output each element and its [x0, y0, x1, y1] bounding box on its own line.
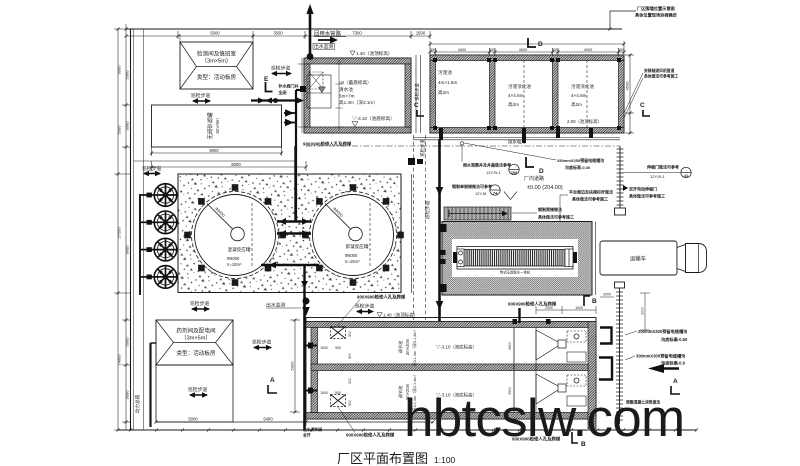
svg-text:钢制爬梯做法: 钢制爬梯做法 — [538, 206, 562, 212]
svg-text:900: 900 — [335, 346, 341, 350]
svg-text:900X900检修人孔及爬梯: 900X900检修人孔及爬梯 — [346, 432, 395, 439]
svg-text:4×4.6m: 4×4.6m — [508, 93, 524, 98]
svg-text:200mmX200预留电缆槽沟: 200mmX200预留电缆槽沟 — [638, 328, 687, 335]
svg-text:2900: 2900 — [508, 342, 512, 350]
svg-text:900: 900 — [335, 391, 341, 395]
svg-text:厂区围墙位置示意图: 厂区围墙位置示意图 — [637, 5, 675, 12]
svg-text:（3m×5m）: （3m×5m） — [202, 58, 232, 65]
svg-text:运输车: 运输车 — [630, 255, 647, 263]
svg-text:B: B — [592, 298, 597, 305]
svg-text:5000: 5000 — [290, 361, 295, 371]
svg-text:4000: 4000 — [519, 48, 527, 52]
svg-text:巡检步道: 巡检步道 — [414, 83, 421, 101]
svg-text:具体做法可参考施工: 具体做法可参考施工 — [643, 74, 678, 79]
svg-text:高1.4m（深3.1m）: 高1.4m（深3.1m） — [339, 99, 378, 106]
svg-text:钢制单侧梯做法可参考: 钢制单侧梯做法可参考 — [452, 183, 492, 189]
svg-text:9000: 9000 — [209, 148, 219, 153]
svg-text:8000: 8000 — [231, 162, 241, 167]
svg-text:1500: 1500 — [416, 31, 426, 36]
svg-text:12YJ9-1: 12YJ9-1 — [650, 174, 666, 179]
svg-text:3m×9m: 3m×9m — [215, 118, 220, 134]
svg-text:类型：活动板房: 类型：活动板房 — [197, 73, 237, 81]
svg-text:Φ6000: Φ6000 — [227, 256, 240, 261]
svg-text:5000: 5000 — [117, 125, 122, 135]
svg-text:2000: 2000 — [603, 293, 611, 297]
svg-text:沟底标高-0.50: 沟底标高-0.50 — [661, 336, 688, 343]
svg-text:A: A — [270, 377, 275, 384]
svg-text:9000: 9000 — [125, 245, 130, 255]
svg-text:调节池: 调节池 — [397, 340, 404, 353]
svg-text:9000: 9000 — [117, 65, 122, 75]
svg-text:双开电动伸缩门: 双开电动伸缩门 — [629, 186, 657, 192]
svg-text:污泥浓化池: 污泥浓化池 — [508, 83, 531, 90]
svg-text:100: 100 — [511, 171, 517, 175]
svg-text:高2m: 高2m — [438, 89, 449, 96]
svg-text:E: E — [264, 76, 269, 83]
svg-text:≈0（蓄底标高）: ≈0（蓄底标高） — [339, 79, 372, 86]
svg-text:类型：活动板房: 类型：活动板房 — [176, 349, 216, 357]
svg-text:41: 41 — [684, 174, 688, 178]
svg-text:出水调节阀: 出水调节阀 — [303, 427, 322, 432]
svg-text:12YJ8: 12YJ8 — [475, 191, 487, 196]
svg-text:4m×1.5m: 4m×1.5m — [438, 80, 457, 85]
svg-text:12YJ9-1: 12YJ9-1 — [486, 170, 502, 175]
svg-text:5m×7m: 5m×7m — [339, 94, 355, 99]
svg-text:▽-3.10（池底标高）: ▽-3.10（池底标高） — [436, 344, 477, 351]
svg-text:具体做法可参考施工: 具体做法可参考施工 — [538, 214, 574, 220]
svg-text:C: C — [414, 102, 419, 109]
svg-text:巡检步道: 巡检步道 — [355, 303, 374, 310]
svg-text:7300: 7300 — [352, 31, 362, 36]
svg-text:▽-3.10（池底标高）: ▽-3.10（池底标高） — [352, 115, 395, 122]
svg-text:3m×20m: 3m×20m — [405, 338, 410, 355]
svg-text:Φ6000: Φ6000 — [345, 253, 358, 258]
svg-text:动力总箱: 动力总箱 — [134, 394, 141, 413]
svg-text:巡检步道: 巡检步道 — [252, 339, 271, 346]
svg-text:300mmX300预留电缆槽沟: 300mmX300预留电缆槽沟 — [636, 353, 685, 360]
svg-text:V=10m³: V=10m³ — [345, 259, 360, 264]
svg-text:絮凝反应罐: 絮凝反应罐 — [346, 243, 369, 250]
svg-text:C: C — [640, 102, 645, 109]
svg-text:900X900检修人孔及爬梯: 900X900检修人孔及爬梯 — [303, 141, 352, 148]
svg-text:药剂间及配电间: 药剂间及配电间 — [176, 327, 216, 335]
svg-text:安装轴流风机管道: 安装轴流风机管道 — [644, 68, 675, 73]
svg-text:±0.00 (204.00): ±0.00 (204.00) — [527, 185, 563, 191]
svg-text:调节池: 调节池 — [397, 385, 404, 398]
svg-text:带式压滤脱水一体机: 带式压滤脱水一体机 — [500, 270, 531, 275]
svg-text:伸缩门做法可参考: 伸缩门做法可参考 — [646, 164, 679, 170]
svg-text:厂内道路: 厂内道路 — [524, 175, 544, 182]
svg-text:混凝反应罐: 混凝反应罐 — [228, 246, 251, 253]
svg-text:1.40（池顶标高）: 1.40（池顶标高） — [383, 312, 418, 319]
svg-text:3000: 3000 — [125, 390, 130, 400]
svg-text:D: D — [538, 41, 543, 48]
svg-text:900: 900 — [348, 353, 352, 359]
svg-text:A: A — [673, 378, 678, 385]
svg-text:1500: 1500 — [320, 391, 328, 395]
svg-text:4000: 4000 — [584, 48, 592, 52]
svg-text:1.40（池顶标高）: 1.40（池顶标高） — [356, 50, 393, 57]
svg-text:300: 300 — [618, 48, 624, 52]
svg-text:全开: 全开 — [302, 433, 311, 438]
svg-text:3500: 3500 — [273, 31, 283, 36]
svg-text:1000: 1000 — [575, 306, 583, 310]
svg-text:300: 300 — [552, 48, 558, 52]
svg-text:补水阀门井: 补水阀门井 — [278, 83, 299, 89]
svg-text:雨水观察井及井盖做法参考: 雨水观察井及井盖做法参考 — [463, 162, 511, 168]
svg-text:5000: 5000 — [125, 70, 130, 80]
svg-text:2000: 2000 — [641, 307, 645, 315]
svg-text:（3m×5m）: （3m×5m） — [181, 335, 211, 342]
svg-text:无阀砂滤罐: 无阀砂滤罐 — [206, 112, 214, 140]
svg-text:14000: 14000 — [117, 354, 122, 366]
svg-text:5400: 5400 — [263, 417, 273, 422]
svg-text:巡检步道: 巡检步道 — [271, 65, 290, 72]
svg-text:高2m: 高2m — [571, 101, 582, 108]
svg-text:巡检步道: 巡检步道 — [188, 386, 207, 393]
svg-text:高3.1,4m（深3.1,4m）: 高3.1,4m（深3.1,4m） — [412, 328, 417, 366]
svg-text:5000: 5000 — [210, 31, 220, 36]
svg-text:沟底标高-0.9: 沟底标高-0.9 — [661, 360, 686, 367]
svg-text:2.00（池顶标高）: 2.00（池顶标高） — [567, 118, 602, 125]
svg-text:具体位置现场协商确定: 具体位置现场协商确定 — [635, 12, 678, 19]
svg-text:巡检步道: 巡检步道 — [419, 139, 426, 157]
svg-text:hbtcslw.com: hbtcslw.com — [404, 389, 684, 448]
svg-text:1500: 1500 — [320, 346, 328, 350]
svg-text:巡检步道: 巡检步道 — [190, 300, 209, 307]
svg-text:巡检步道: 巡检步道 — [142, 165, 161, 172]
svg-text:污泥池: 污泥池 — [438, 69, 452, 76]
svg-text:1:100: 1:100 — [434, 455, 456, 465]
svg-text:具体做法可参考施工: 具体做法可参考施工 — [629, 193, 665, 199]
svg-text:巡检步道: 巡检步道 — [424, 200, 431, 219]
svg-text:污泥浓化池: 污泥浓化池 — [571, 83, 594, 90]
svg-text:清水池: 清水池 — [339, 86, 353, 93]
svg-text:4000: 4000 — [458, 48, 466, 52]
svg-text:2000: 2000 — [545, 306, 553, 310]
svg-text:3000: 3000 — [125, 121, 130, 131]
svg-text:300: 300 — [430, 48, 436, 52]
svg-text:300: 300 — [348, 378, 352, 384]
svg-text:4×4.6m: 4×4.6m — [571, 93, 587, 98]
svg-text:250mmX250预留电缆槽沟: 250mmX250预留电缆槽沟 — [557, 157, 604, 163]
svg-text:出水监测: 出水监测 — [266, 302, 285, 309]
svg-text:D: D — [539, 168, 544, 175]
svg-text:沟底标高-0.30: 沟底标高-0.30 — [565, 164, 591, 170]
svg-text:900: 900 — [348, 400, 352, 406]
svg-text:平台周边及扶梯栏杆做法: 平台周边及扶梯栏杆做法 — [569, 189, 613, 195]
svg-text:厂区平面布置图: 厂区平面布置图 — [337, 451, 428, 466]
svg-text:高2m: 高2m — [508, 101, 519, 108]
svg-text:300: 300 — [348, 331, 352, 337]
svg-text:900X900检修人孔及爬梯: 900X900检修人孔及爬梯 — [357, 294, 406, 301]
svg-text:具体做法可参考施工: 具体做法可参考施工 — [572, 196, 608, 202]
svg-text:4500: 4500 — [625, 81, 630, 91]
svg-text:回用水管路: 回用水管路 — [314, 30, 342, 38]
svg-text:全闭: 全闭 — [278, 89, 287, 95]
svg-text:V=10m³: V=10m³ — [227, 262, 242, 267]
svg-text:5000: 5000 — [125, 337, 130, 347]
svg-text:巡检步道: 巡检步道 — [191, 92, 210, 99]
svg-text:27500: 27500 — [117, 227, 122, 239]
svg-text:检测间及值班室: 检测间及值班室 — [197, 50, 237, 58]
svg-text:300: 300 — [489, 48, 495, 52]
svg-text:5000: 5000 — [188, 417, 198, 422]
